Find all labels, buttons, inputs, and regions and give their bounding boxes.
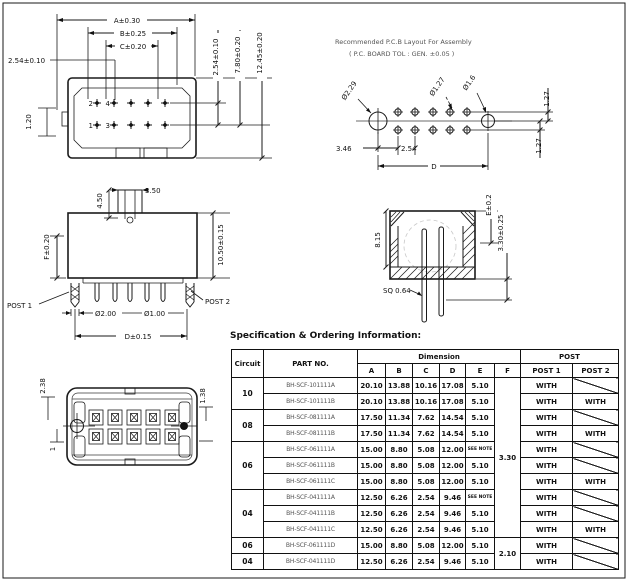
circuit-cell: 06	[232, 538, 264, 554]
post2-label: POST 2	[205, 298, 230, 306]
dim-cell-a: 20.10	[358, 394, 386, 410]
dim-cell-e: 5.10	[466, 554, 495, 570]
col-header-dim-e: E	[466, 364, 495, 378]
part-no-cell: BH-SCF-061111D	[264, 538, 358, 554]
dim-cell-c: 5.08	[413, 442, 440, 458]
table-row: BH-SCF-041111B12.506.262.549.465.10WITH	[232, 506, 619, 522]
table-row: 04BH-SCF-041111A12.506.262.549.46SEE NOT…	[232, 490, 619, 506]
post2-slash-cell	[573, 378, 619, 394]
post2-slash-cell	[573, 458, 619, 474]
dim-cell-b: 8.80	[386, 474, 413, 490]
dim-cell-d: 9.46	[440, 506, 466, 522]
dim-cell-e: 5.10	[466, 394, 495, 410]
dim-cell-e: 5.10	[466, 538, 495, 554]
circuit-cell: 06	[232, 442, 264, 490]
dim-cell-e: SEE NOTE	[466, 490, 495, 506]
dim-330: 3.30±0.25	[497, 214, 505, 251]
dim-cell-a: 17.50	[358, 426, 386, 442]
dim-cell-b: 8.80	[386, 442, 413, 458]
dim-cell-d: 14.54	[440, 426, 466, 442]
part-no-cell: BH-SCF-041111B	[264, 506, 358, 522]
dim-cell-d: 9.46	[440, 490, 466, 506]
dim-e: E±0.2	[485, 194, 493, 215]
dim-cell-d: 12.00	[440, 458, 466, 474]
dim-sq: SQ 0.64	[383, 287, 411, 295]
col-header-dim-b: B	[386, 364, 413, 378]
post2-cell: WITH	[573, 426, 619, 442]
dim-cell-d: 9.46	[440, 522, 466, 538]
post2-slash-cell	[573, 554, 619, 570]
dim-cell-d: 17.08	[440, 378, 466, 394]
post2-slash-cell	[573, 506, 619, 522]
circuit-cell: 04	[232, 490, 264, 538]
col-header-part-no: PART NO.	[264, 350, 358, 378]
table-row: 10BH-SCF-101111A20.1013.8810.1617.085.10…	[232, 378, 619, 394]
pin-label-4: 4	[106, 100, 111, 108]
dim-a: A±0.30	[114, 17, 140, 25]
part-no-cell: BH-SCF-061111B	[264, 458, 358, 474]
pin-label-2: 2	[89, 100, 93, 108]
dim-hole-mid: Ø1.27	[428, 76, 447, 98]
dim-cell-c: 10.16	[413, 394, 440, 410]
part-no-cell: BH-SCF-061111A	[264, 442, 358, 458]
post1-cell: WITH	[521, 394, 573, 410]
dim-cell-c: 2.54	[413, 506, 440, 522]
dim-hole-right: Ø1.6	[461, 73, 477, 92]
drawing-sheet: 2 4 1 3 A±0.30 B±0.25 C±0.20 2.54±0.10 1…	[0, 0, 629, 582]
post1-cell: WITH	[521, 538, 573, 554]
dim-cell-c: 5.08	[413, 458, 440, 474]
dim-346: 3.46	[336, 145, 352, 153]
dim-h2: 12.45±0.20	[256, 32, 264, 74]
part-no-cell: BH-SCF-101111A	[264, 378, 358, 394]
dim-cell-c: 2.54	[413, 522, 440, 538]
dim-cell-c: 2.54	[413, 554, 440, 570]
bottom-cavities	[89, 410, 179, 444]
pin-label-3: 3	[106, 122, 110, 130]
dim-cell-a: 12.50	[358, 522, 386, 538]
table-row: BH-SCF-041111C12.506.262.549.465.10WITHW…	[232, 522, 619, 538]
part-no-cell: BH-SCF-061111C	[264, 474, 358, 490]
section-view: 8.15 E±0.2 3.30±0.25 SQ 0.64	[374, 192, 512, 322]
dim-cell-b: 11.34	[386, 426, 413, 442]
table-row: 04BH-SCF-041111D12.506.262.549.465.10WIT…	[232, 554, 619, 570]
side-pins	[95, 283, 165, 302]
col-header-dim-d: D	[440, 364, 466, 378]
col-header-post2: POST 2	[573, 364, 619, 378]
dim-cell-a: 12.50	[358, 506, 386, 522]
plan-pins	[93, 99, 169, 129]
dim-cell-d: 14.54	[440, 410, 466, 426]
post1-cell: WITH	[521, 522, 573, 538]
dim-row-offset-top: 1.27	[543, 91, 551, 107]
dim-cell-d: 17.08	[440, 394, 466, 410]
dim-hole-left: Ø2.29	[340, 80, 359, 102]
col-header-post: POST	[521, 350, 619, 364]
dim-pitch-right: 2.54±0.10	[212, 38, 220, 75]
dim-cell-c: 2.54	[413, 490, 440, 506]
dim-cell-c: 5.08	[413, 474, 440, 490]
dim-cell-d: 9.46	[440, 554, 466, 570]
dim-boss-height: 4.50	[96, 193, 104, 209]
dim-span-d: D	[431, 163, 436, 171]
post1-cell: WITH	[521, 410, 573, 426]
dim-span-d: D±0.15	[125, 333, 152, 341]
dim-pin-dia: Ø1.00	[144, 310, 165, 318]
post2-slash-cell	[573, 490, 619, 506]
col-header-dim-c: C	[413, 364, 440, 378]
dim-815: 8.15	[374, 232, 382, 248]
dim-cell-d: 12.00	[440, 442, 466, 458]
dim-cell-a: 17.50	[358, 410, 386, 426]
dim-f: F±0.20	[43, 234, 51, 259]
dim-cell-d: 12.00	[440, 474, 466, 490]
col-header-dim-f: F	[495, 364, 521, 378]
dim-cell-a: 15.00	[358, 474, 386, 490]
post1-cell: WITH	[521, 458, 573, 474]
pin-label-1: 1	[89, 122, 93, 130]
part-no-cell: BH-SCF-081111A	[264, 410, 358, 426]
post1-cell: WITH	[521, 490, 573, 506]
table-row: BH-SCF-061111C15.008.805.0812.005.10WITH…	[232, 474, 619, 490]
dim-cell-b: 8.80	[386, 538, 413, 554]
f-cell: 2.10	[495, 538, 521, 570]
dim-cell-e: 5.10	[466, 458, 495, 474]
dim-cell-b: 8.80	[386, 458, 413, 474]
pcb-layout-view: Recommended P.C.B Layout For Assembly ( …	[335, 38, 553, 171]
dim-tab-height: 1.20	[25, 114, 33, 130]
dim-cell-b: 6.26	[386, 506, 413, 522]
dim-cell-b: 13.88	[386, 394, 413, 410]
dim-row-offset-bottom: 1.27	[535, 138, 543, 154]
spec-table: CircuitPART NO.DimensionPOSTABCDEFPOST 1…	[231, 349, 619, 570]
dim-cell-e: 5.10	[466, 522, 495, 538]
post1-cell: WITH	[521, 554, 573, 570]
dim-post-dia: Ø2.00	[95, 310, 116, 318]
post2-cell: WITH	[573, 474, 619, 490]
post2-slash-cell	[573, 538, 619, 554]
dim-pitch-left: 2.54±0.10	[8, 57, 45, 65]
dim-cell-a: 20.10	[358, 378, 386, 394]
dim-cell-b: 6.26	[386, 490, 413, 506]
dim-cell-d: 12.00	[440, 538, 466, 554]
side-view: 4.50 3.50 10.50±0.15 F±0.20 POST 1 POST …	[7, 187, 230, 341]
post1-cell: WITH	[521, 474, 573, 490]
dim-body-height: 10.50±0.15	[217, 224, 225, 266]
dim-cell-c: 7.62	[413, 410, 440, 426]
dim-cell-e: SEE NOTE	[466, 442, 495, 458]
side-post-right	[186, 283, 194, 307]
pcb-note-line1: Recommended P.C.B Layout For Assembly	[335, 38, 472, 46]
dim-cell-a: 15.00	[358, 538, 386, 554]
part-no-cell: BH-SCF-081111B	[264, 426, 358, 442]
bottom-view: 2.38 1 1.38	[39, 378, 213, 465]
dim-b: B±0.25	[120, 30, 146, 38]
part-no-cell: BH-SCF-101111B	[264, 394, 358, 410]
part-no-cell: BH-SCF-041111A	[264, 490, 358, 506]
dim-254: 2.54	[401, 145, 417, 153]
dim-cell-c: 7.62	[413, 426, 440, 442]
dim-cell-e: 5.10	[466, 378, 495, 394]
table-row: BH-SCF-081111B17.5011.347.6214.545.10WIT…	[232, 426, 619, 442]
col-header-post1: POST 1	[521, 364, 573, 378]
dim-cell-b: 11.34	[386, 410, 413, 426]
post1-cell: WITH	[521, 426, 573, 442]
post1-cell: WITH	[521, 378, 573, 394]
table-row: 06BH-SCF-061111D15.008.805.0812.005.102.…	[232, 538, 619, 554]
dim-h1: 7.80±0.20	[234, 36, 242, 73]
dim-cell-a: 12.50	[358, 554, 386, 570]
table-row: BH-SCF-061111B15.008.805.0812.005.10WITH	[232, 458, 619, 474]
post1-cell: WITH	[521, 442, 573, 458]
post2-cell: WITH	[573, 522, 619, 538]
pcb-note-line2: ( P.C. BOARD TOL : GEN. ±0.05 )	[349, 50, 454, 58]
table-row: BH-SCF-101111B20.1013.8810.1617.085.10WI…	[232, 394, 619, 410]
plan-view: 2 4 1 3 A±0.30 B±0.25 C±0.20 2.54±0.10 1…	[8, 14, 272, 161]
dim-cell-e: 5.10	[466, 474, 495, 490]
col-header-dimension: Dimension	[358, 350, 521, 364]
dim-cell-e: 5.10	[466, 426, 495, 442]
dim-cell-e: 5.10	[466, 506, 495, 522]
dim-cell-e: 5.10	[466, 410, 495, 426]
dim-cell-b: 13.88	[386, 378, 413, 394]
dim-cell-a: 12.50	[358, 490, 386, 506]
dim-one: 1	[49, 447, 57, 451]
dim-cell-b: 6.26	[386, 554, 413, 570]
dim-boss-width: 3.50	[145, 187, 161, 195]
dim-c: C±0.20	[120, 43, 146, 51]
post2-slash-cell	[573, 410, 619, 426]
table-row: 06BH-SCF-061111A15.008.805.0812.00SEE NO…	[232, 442, 619, 458]
circuit-cell: 04	[232, 554, 264, 570]
dim-238: 2.38	[39, 378, 47, 394]
part-no-cell: BH-SCF-041111C	[264, 522, 358, 538]
dim-cell-c: 5.08	[413, 538, 440, 554]
post1-cell: WITH	[521, 506, 573, 522]
part-no-cell: BH-SCF-041111D	[264, 554, 358, 570]
post2-cell: WITH	[573, 394, 619, 410]
circuit-cell: 08	[232, 410, 264, 442]
col-header-circuit: Circuit	[232, 350, 264, 378]
dim-cell-b: 6.26	[386, 522, 413, 538]
dim-cell-a: 15.00	[358, 442, 386, 458]
table-row: 08BH-SCF-081111A17.5011.347.6214.545.10W…	[232, 410, 619, 426]
post2-slash-cell	[573, 442, 619, 458]
col-header-dim-a: A	[358, 364, 386, 378]
dim-cell-a: 15.00	[358, 458, 386, 474]
circuit-cell: 10	[232, 378, 264, 410]
dim-138: 1.38	[199, 388, 207, 404]
f-cell: 3.30	[495, 378, 521, 538]
spec-title: Specification & Ordering Information:	[230, 331, 421, 341]
side-post-left	[71, 283, 79, 307]
post1-label: POST 1	[7, 302, 32, 310]
dim-cell-c: 10.16	[413, 378, 440, 394]
